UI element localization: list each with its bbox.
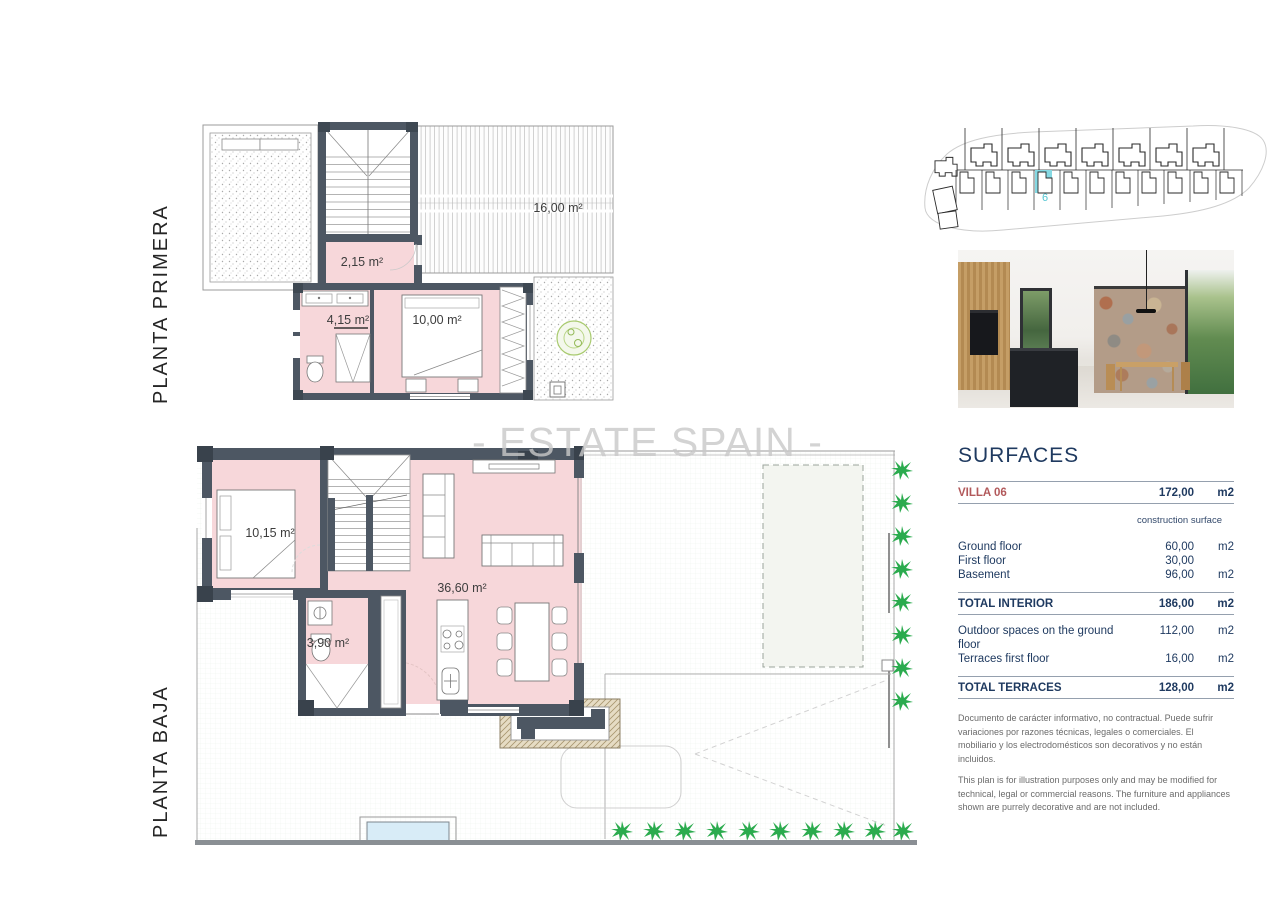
table-row: First floor 30,00 xyxy=(958,554,1234,568)
row-label: Ground floor xyxy=(958,540,1138,554)
photo-table-leg xyxy=(1172,367,1174,391)
roof-below-area xyxy=(203,125,318,290)
total-label: TOTAL TERRACES xyxy=(958,681,1138,695)
photo-dining-table xyxy=(1116,362,1178,367)
column-header: construction surface xyxy=(958,515,1234,526)
total-value: 128,00 xyxy=(1138,681,1194,695)
villa-value: 172,00 xyxy=(1138,486,1194,500)
villa-footprints-top xyxy=(935,144,1219,176)
first-floor-plan-drawing xyxy=(200,120,615,402)
villa-label: VILLA 06 xyxy=(958,486,1138,500)
terrace-decking xyxy=(417,126,613,273)
gate-post xyxy=(882,660,893,671)
photo-chair xyxy=(1106,364,1115,390)
disclaimer-english: This plan is for illustration purposes o… xyxy=(958,774,1234,815)
sofa xyxy=(482,535,563,566)
table-row: Outdoor spaces on the ground floor 112,0… xyxy=(958,624,1234,652)
row-value: 16,00 xyxy=(1138,652,1194,666)
row-value: 112,00 xyxy=(1138,624,1194,638)
row-label: Basement xyxy=(958,568,1138,582)
side-garden xyxy=(534,277,613,400)
estate-spain-watermark: - ESTATE SPAIN - xyxy=(472,419,823,466)
closet xyxy=(376,590,406,716)
area-label-terrace: 16,00 m² xyxy=(533,201,582,215)
row-value: 30,00 xyxy=(1138,554,1194,568)
table-row: Basement 96,00 m2 xyxy=(958,568,1234,582)
first-floor-plan: 2,15 m² 4,15 m² 10,00 m² 16,00 m² xyxy=(200,120,615,402)
row-value: 60,00 xyxy=(1138,540,1194,554)
bathroom-block xyxy=(298,590,376,716)
area-label-bedroom: 10,15 m² xyxy=(245,526,294,540)
photo-chair xyxy=(1181,362,1190,390)
interior-render-photo xyxy=(958,250,1234,408)
first-floor-title: PLANTA PRIMERA xyxy=(150,232,173,404)
row-label: Terraces first floor xyxy=(958,652,1138,666)
terrace-dashed-zone xyxy=(763,465,863,667)
total-value: 186,00 xyxy=(1138,597,1194,611)
area-label-bathroom: 3,90 m² xyxy=(307,636,349,650)
wardrobe xyxy=(500,287,526,393)
area-label-stair-hall: 2,15 m² xyxy=(341,255,383,269)
row-unit: m2 xyxy=(1194,624,1234,638)
total-interior-row: TOTAL INTERIOR 186,00 m2 xyxy=(958,592,1234,615)
surfaces-panel: SURFACES VILLA 06 172,00 m2 construction… xyxy=(958,444,1234,815)
kitchen-island xyxy=(437,600,468,714)
stairs xyxy=(318,122,418,242)
bedroom-bathroom-block xyxy=(293,283,533,400)
stairs xyxy=(328,455,410,571)
row-unit: m2 xyxy=(1194,652,1234,666)
row-label: Outdoor spaces on the ground floor xyxy=(958,624,1138,652)
row-label: First floor xyxy=(958,554,1138,568)
area-label-living-kitchen: 36,60 m² xyxy=(437,581,486,595)
total-terraces-row: TOTAL TERRACES 128,00 m2 xyxy=(958,676,1234,699)
table-row: Terraces first floor 16,00 m2 xyxy=(958,652,1234,666)
photo-table-leg xyxy=(1120,367,1122,391)
site-plan-drawing xyxy=(923,92,1268,242)
surfaces-title: SURFACES xyxy=(958,444,1234,468)
site-plan: 6 xyxy=(923,92,1268,242)
photo-oven xyxy=(970,310,998,355)
shower xyxy=(336,334,370,382)
total-unit: m2 xyxy=(1194,681,1234,695)
highlighted-villa-number: 6 xyxy=(1037,192,1053,204)
photo-kitchen-island xyxy=(1010,348,1078,407)
photo-garden-window xyxy=(1185,270,1234,394)
dining-set xyxy=(497,603,567,681)
floorplan-document-page: PLANTA PRIMERA PLANTA BAJA - ESTATE SPAI… xyxy=(0,0,1275,897)
area-label-bathroom: 4,15 m² xyxy=(327,313,369,327)
street-line xyxy=(195,840,917,845)
armchairs xyxy=(423,474,454,558)
total-label: TOTAL INTERIOR xyxy=(958,597,1138,611)
ground-floor-plan-drawing xyxy=(195,438,920,848)
villa-footprints-bottom xyxy=(933,172,1234,229)
total-unit: m2 xyxy=(1194,597,1234,611)
ground-floor-title: PLANTA BAJA xyxy=(150,688,173,838)
villa-total-row: VILLA 06 172,00 m2 xyxy=(958,481,1234,504)
row-unit: m2 xyxy=(1194,540,1234,554)
bedroom-block xyxy=(202,448,328,600)
photo-pendant-cord xyxy=(1146,250,1147,310)
ground-floor-plan: 10,15 m² 36,60 m² 3,90 m² xyxy=(195,438,920,848)
table-row: Ground floor 60,00 m2 xyxy=(958,540,1234,554)
tree-icon xyxy=(557,321,591,355)
shower xyxy=(306,664,368,708)
area-label-bedroom: 10,00 m² xyxy=(412,313,461,327)
row-value: 96,00 xyxy=(1138,568,1194,582)
row-unit: m2 xyxy=(1194,568,1234,582)
photo-pendant-lamp xyxy=(1136,309,1156,313)
disclaimer-spanish: Documento de carácter informativo, no co… xyxy=(958,712,1234,766)
villa-unit: m2 xyxy=(1194,486,1234,500)
